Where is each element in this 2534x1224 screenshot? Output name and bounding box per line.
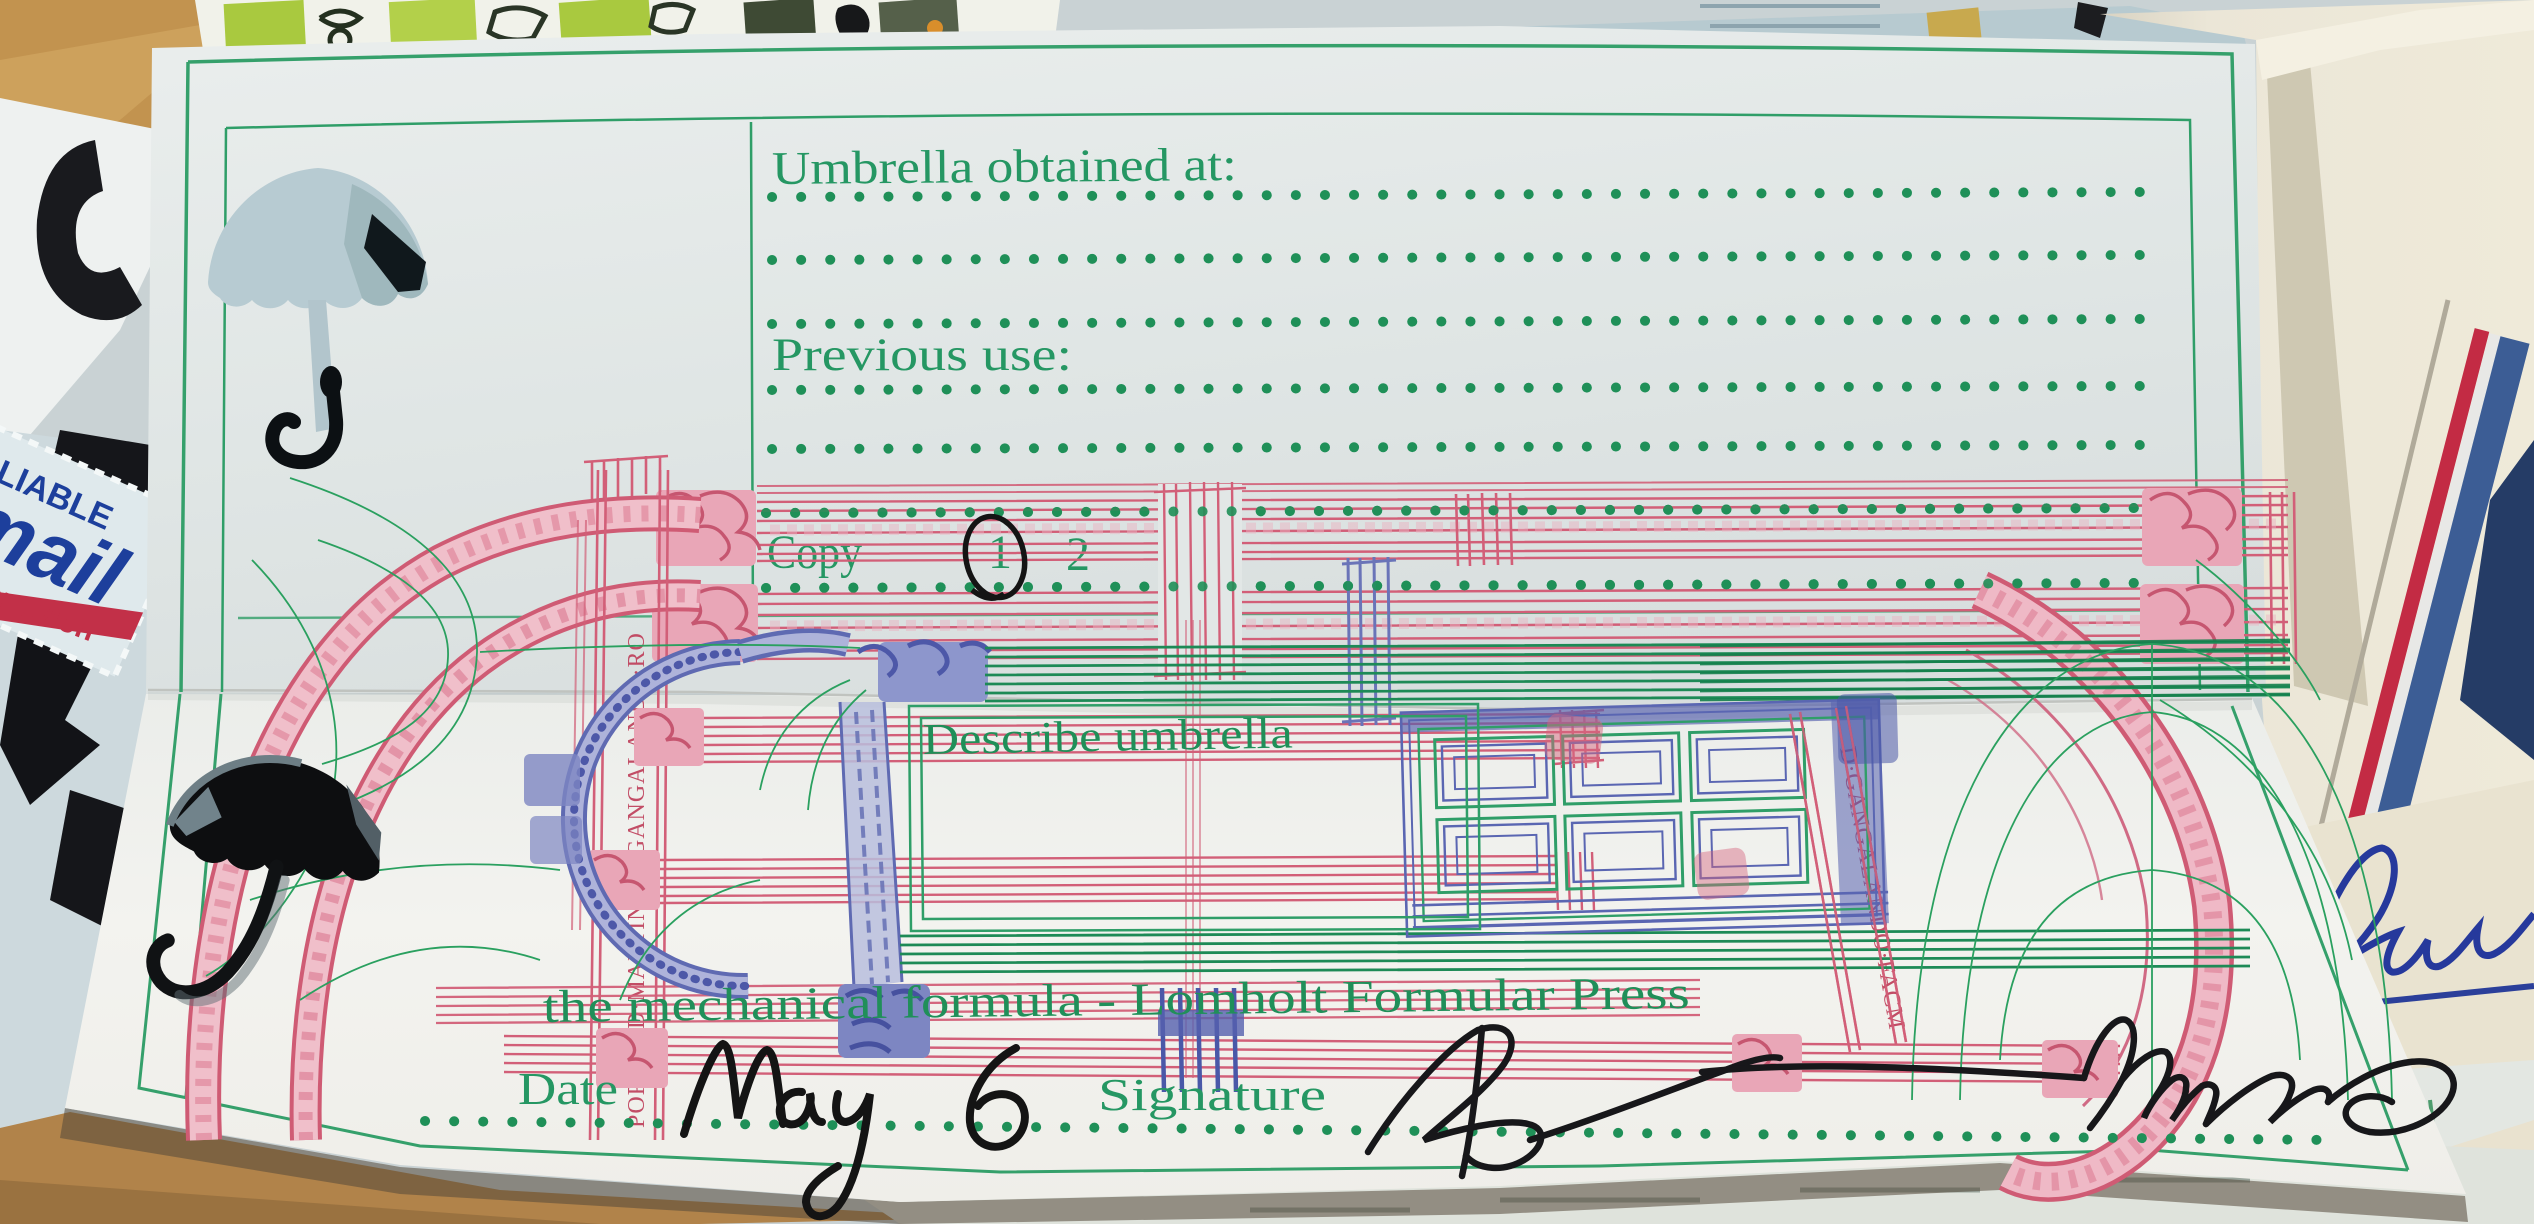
svg-text:Date: Date <box>518 1063 618 1114</box>
svg-text:Signature: Signature <box>1098 1069 1326 1120</box>
svg-text:Describe umbrella: Describe umbrella <box>922 709 1293 764</box>
svg-text:Umbrella obtained at:: Umbrella obtained at: <box>772 139 1237 195</box>
svg-text:Previous use:: Previous use: <box>772 329 1072 381</box>
svg-text:2: 2 <box>1066 528 1090 581</box>
